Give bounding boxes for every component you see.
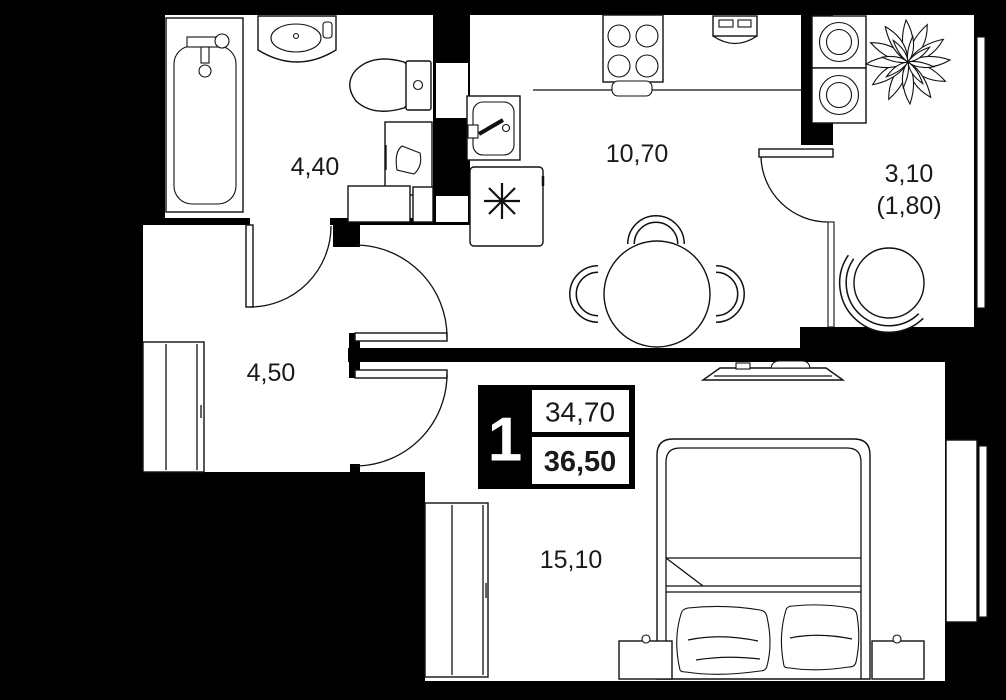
floor-plan-canvas: 4,40 10,70 3,10 (1,80) 4,50 15,10 1 34,7… — [0, 0, 1006, 700]
toilet — [350, 59, 431, 111]
bathroom-cabinet — [385, 122, 432, 195]
info-badge: 1 34,70 36,50 — [478, 385, 635, 489]
bathroom-sink — [258, 16, 336, 62]
hallway-area-label: 4,50 — [247, 359, 296, 387]
nightstand-right — [872, 635, 924, 679]
living-door-leaf — [355, 370, 447, 378]
stove-panel — [612, 81, 652, 96]
bathroom-door-opening — [250, 218, 330, 225]
toilet-button — [414, 81, 423, 90]
nightstand-left — [619, 635, 672, 679]
area-total-label: 36,50 — [544, 446, 617, 478]
burner — [636, 55, 658, 77]
vent-shaft-wall — [433, 15, 470, 225]
snowflake-icon — [484, 183, 520, 219]
rooms-count-label: 1 — [488, 406, 522, 475]
kitchen-area-label: 10,70 — [606, 140, 669, 168]
balcony-area-label: 3,10 — [885, 160, 934, 188]
balcony-glazing — [977, 37, 985, 308]
bed — [657, 439, 870, 679]
balcony-reduced-area-label: (1,80) — [876, 192, 941, 220]
balcony-table — [854, 248, 924, 318]
balcony-door-leaf — [759, 149, 833, 157]
vent-shaft-niche-upper — [436, 63, 468, 118]
burner — [636, 25, 658, 47]
bathroom-door-leaf — [246, 225, 253, 307]
living-room-area-label: 15,10 — [540, 546, 603, 574]
kitchen-door-leaf — [355, 333, 447, 341]
burner — [608, 55, 630, 77]
vent-shaft-niche-lower — [436, 196, 468, 222]
living-room-window-sill — [979, 446, 987, 617]
bathroom-shelf — [413, 187, 433, 222]
hallway-wardrobe — [143, 342, 204, 472]
bathroom-area-label: 4,40 — [291, 153, 340, 181]
bathtub — [166, 18, 243, 212]
bathtub-drain — [199, 65, 211, 77]
bottom-wall — [425, 681, 1006, 700]
floor-plan: 4,40 10,70 3,10 (1,80) 4,50 15,10 1 34,7… — [0, 0, 1006, 700]
fridge — [470, 167, 543, 246]
living-room-window — [946, 440, 977, 622]
kitchen-living-wall — [348, 348, 800, 362]
kitchen-sink — [467, 96, 520, 160]
burner — [608, 25, 630, 47]
bathroom-left-wall — [143, 15, 165, 218]
area-main-label: 34,70 — [545, 397, 615, 428]
dining-table — [604, 241, 710, 347]
washer-dryer-stack — [812, 16, 866, 123]
living-wardrobe — [425, 503, 488, 677]
top-wall — [0, 0, 1006, 15]
balcony-partition — [828, 222, 834, 327]
bathroom-cup — [323, 22, 332, 38]
washing-machine — [348, 186, 410, 222]
bathtub-faucet-knob — [215, 34, 229, 48]
left-margin — [0, 0, 143, 700]
